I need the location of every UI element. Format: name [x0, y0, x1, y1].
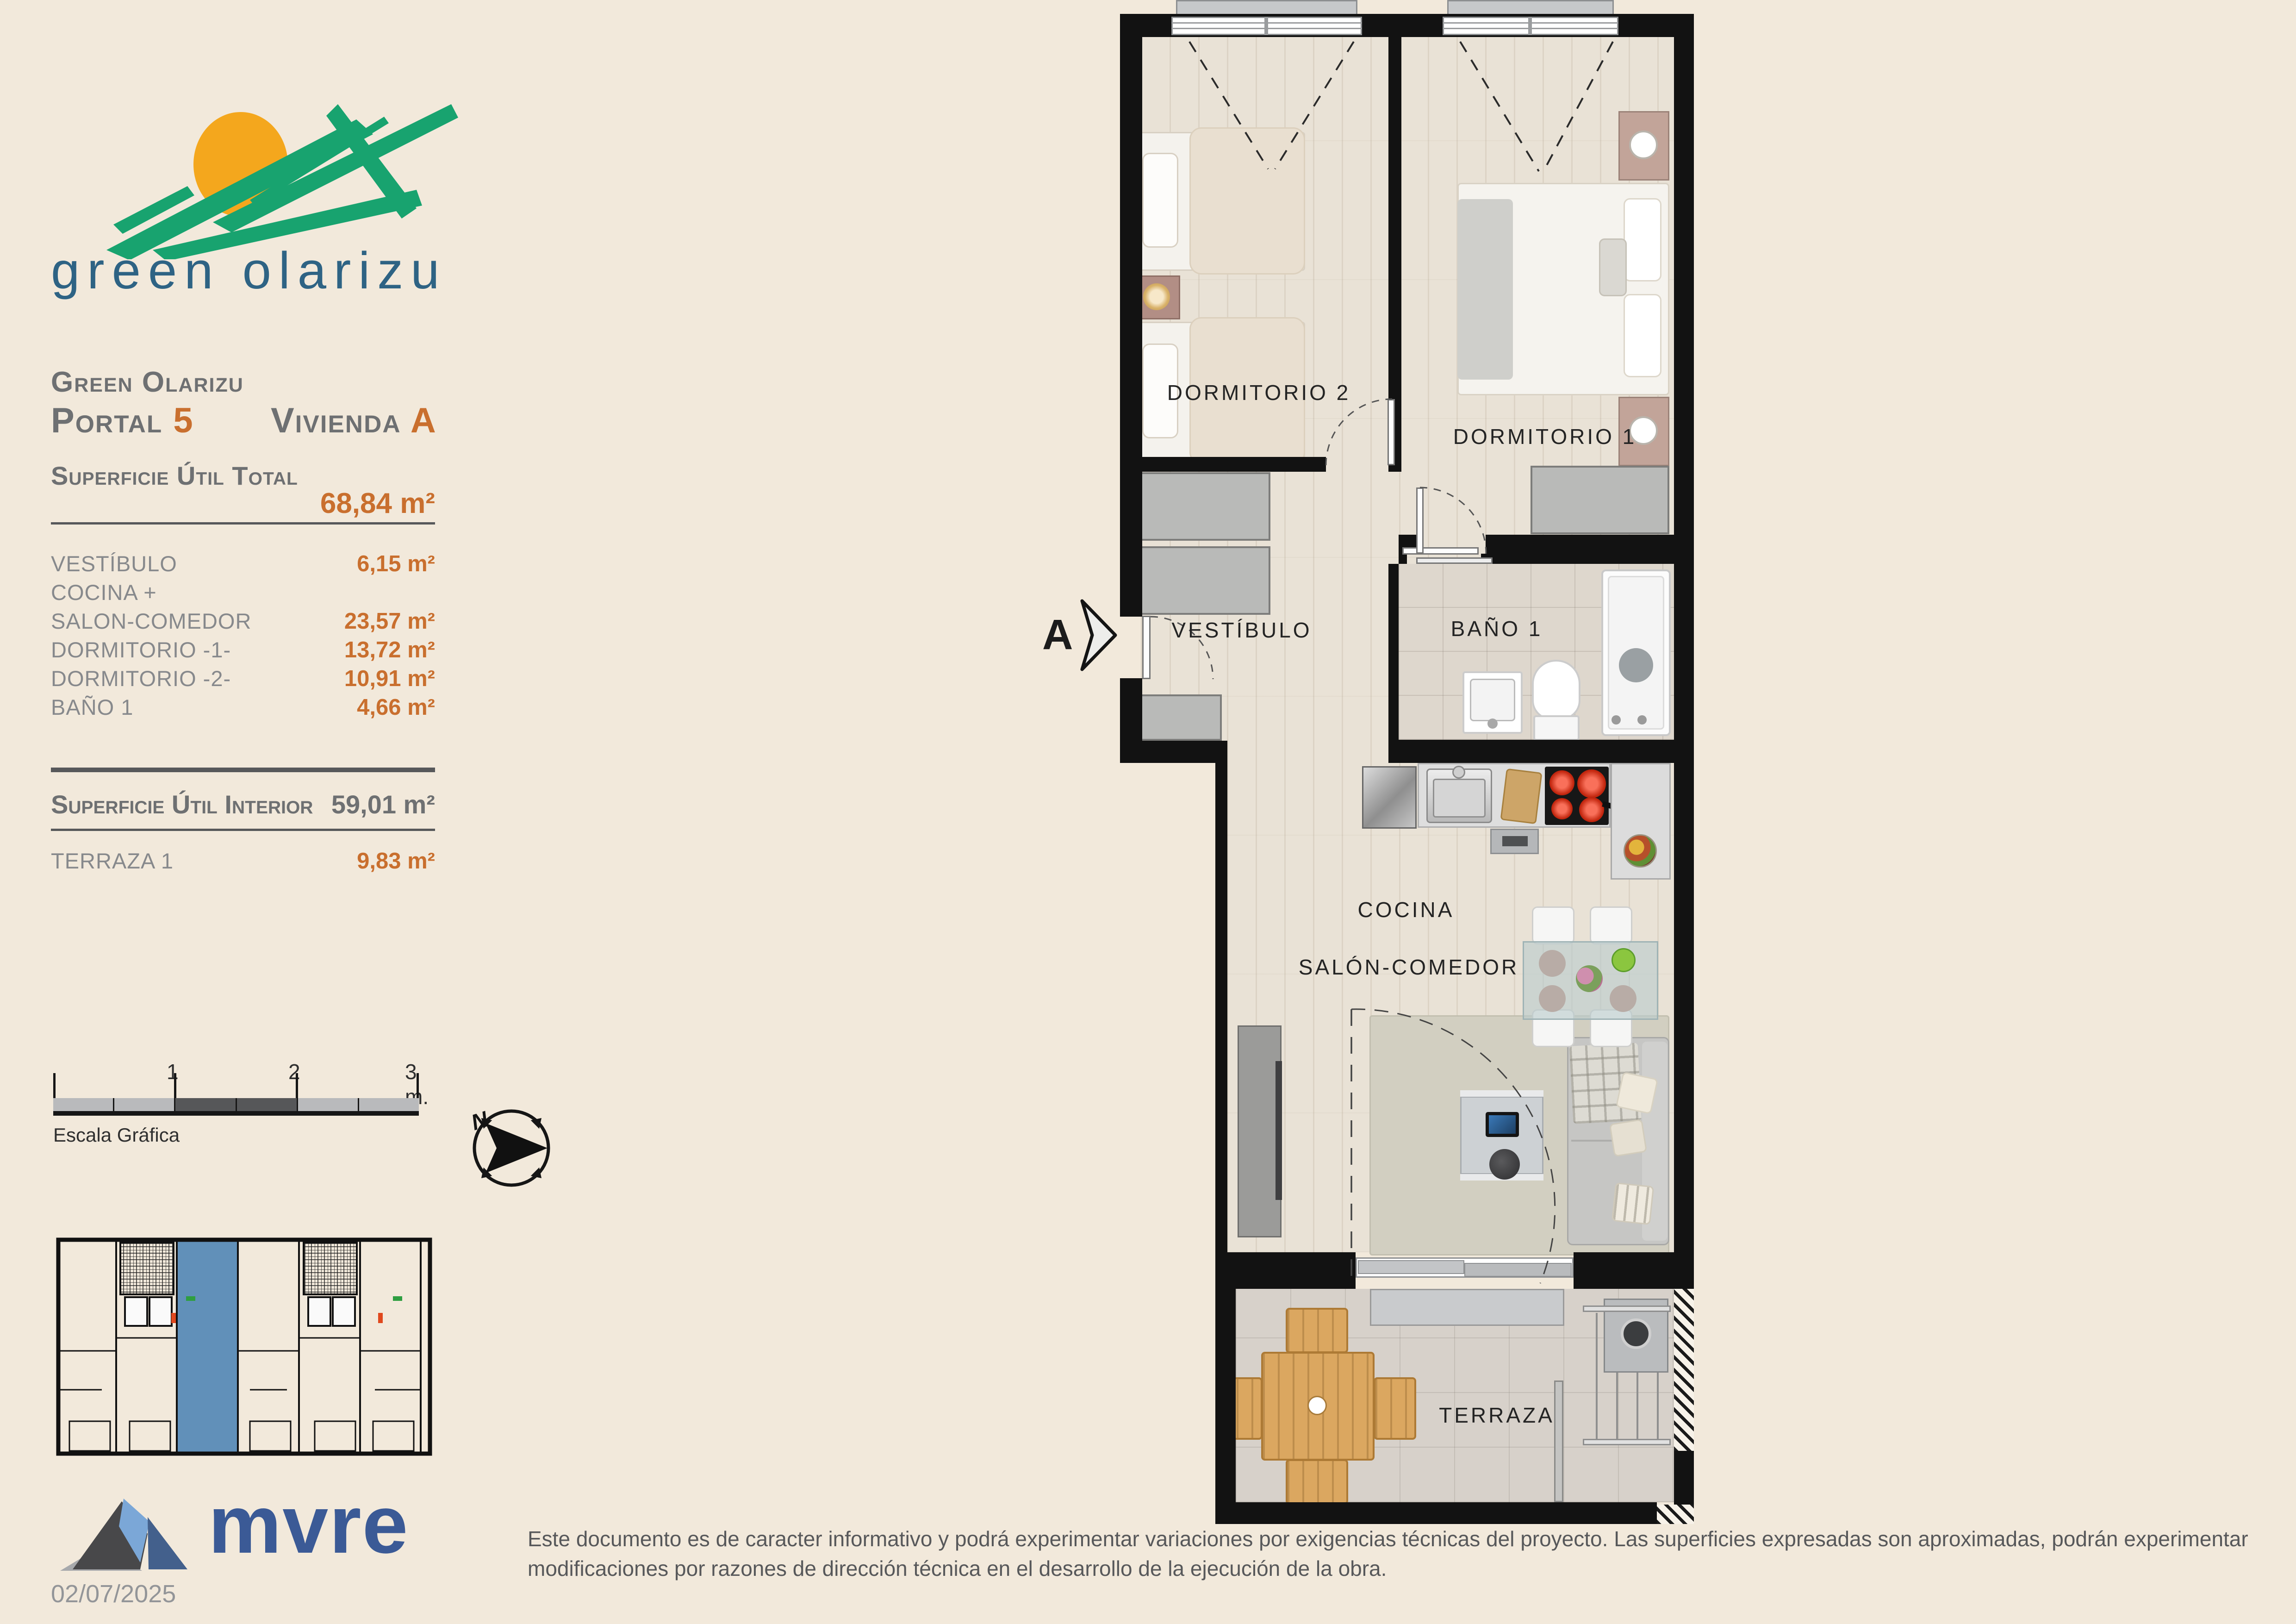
vivienda-label: Vivienda: [271, 401, 401, 440]
elevators: [125, 1297, 355, 1326]
section-marker-letter: A: [1042, 611, 1073, 658]
scale-caption: Escala Gráfica: [53, 1124, 180, 1146]
superficie-total-label: Superficie Útil Total: [51, 461, 298, 491]
terrace-stubs: [69, 1421, 414, 1451]
portal-number: 5: [173, 401, 193, 440]
row-label: BAÑO 1: [51, 694, 133, 720]
row-value: 9,83 m²: [357, 848, 435, 874]
scale-bar: 1 2 3 m. Escala Gráfica: [53, 1059, 423, 1147]
room-label-dormitorio1: DORMITORIO 1: [1453, 424, 1637, 449]
brand-logo-text: green olarizu: [51, 241, 514, 300]
table-row: SALON-COMEDOR 23,57 m²: [51, 608, 435, 637]
row-label: SALON-COMEDOR: [51, 608, 251, 634]
room-label-vestibulo: VESTÍBULO: [1171, 618, 1312, 643]
row-label: DORMITORIO -1-: [51, 637, 231, 662]
grass-strokes-icon: [106, 104, 458, 259]
portal-label: Portal: [51, 401, 162, 440]
superficie-total-value: 68,84 m²: [51, 487, 435, 520]
row-value: 13,72 m²: [344, 637, 435, 663]
superficie-interior-value: 59,01 m²: [331, 789, 435, 819]
date-label: 02/07/2025: [51, 1580, 176, 1608]
entry-door-marker: [378, 1313, 383, 1323]
portal-vivienda-line: Portal 5 Vivienda A: [51, 400, 437, 441]
scale-tick-label-1: 1: [167, 1059, 179, 1084]
vivienda-letter: A: [411, 401, 437, 440]
floor-plan: DORMITORIO 2 DORMITORIO 1 VESTÍBULO BAÑO…: [1120, 14, 1694, 1524]
room-label-bano1: BAÑO 1: [1451, 616, 1543, 641]
mvre-logo-icon: [53, 1488, 206, 1576]
table-row: BAÑO 1 4,66 m²: [51, 694, 435, 723]
row-label: COCINA +: [51, 580, 157, 605]
plan-sheet: green olarizu Green Olarizu Portal 5 Viv…: [0, 0, 2296, 1624]
divider: [51, 522, 435, 525]
section-arrow-icon: [1082, 601, 1115, 669]
superficie-interior-line: Superficie Útil Interior 59,01 m²: [51, 789, 435, 819]
stair-core: [304, 1243, 357, 1294]
table-row: COCINA +: [51, 580, 435, 608]
surface-rows: VESTÍBULO 6,15 m² COCINA + SALON-COMEDOR…: [51, 551, 435, 723]
utility-marker: [186, 1296, 195, 1301]
table-row: VESTÍBULO 6,15 m²: [51, 551, 435, 580]
row-value: 4,66 m²: [357, 694, 435, 720]
compass-icon: N: [465, 1102, 558, 1194]
room-label-cocina: COCINA: [1358, 897, 1455, 922]
highlighted-unit: [177, 1242, 238, 1452]
entry-door-marker: [171, 1313, 176, 1323]
disclaimer-text: Este documento es de caracter informativ…: [528, 1524, 2268, 1583]
row-label: TERRAZA 1: [51, 848, 174, 874]
superficie-interior-label: Superficie Útil Interior: [51, 789, 313, 819]
terraza-row: TERRAZA 1 9,83 m²: [51, 848, 435, 874]
room-label-dormitorio2: DORMITORIO 2: [1167, 380, 1351, 405]
plan-annotations: [1120, 14, 1694, 1524]
row-label: VESTÍBULO: [51, 551, 177, 576]
divider: [51, 829, 435, 831]
table-row: DORMITORIO -2- 10,91 m²: [51, 666, 435, 694]
divider-thick: [51, 768, 435, 772]
table-row: DORMITORIO -1- 13,72 m²: [51, 637, 435, 666]
building-key-plan: [56, 1237, 433, 1458]
room-label-salon: SALÓN-COMEDOR: [1299, 955, 1519, 980]
room-label-terraza: TERRAZA: [1439, 1403, 1555, 1428]
scale-tick-label-2: 2: [288, 1059, 300, 1084]
stair-core: [120, 1243, 174, 1294]
scale-baseline: [53, 1111, 419, 1116]
row-value: 23,57 m²: [344, 608, 435, 634]
project-title: Green Olarizu: [51, 366, 244, 399]
row-value: 6,15 m²: [357, 551, 435, 577]
scale-segments: [53, 1098, 419, 1111]
row-value: 10,91 m²: [344, 666, 435, 692]
row-label: DORMITORIO -2-: [51, 666, 231, 691]
utility-marker: [393, 1296, 402, 1301]
brand-logo-icon: [97, 65, 477, 259]
mvre-logo-text: mvre: [208, 1490, 409, 1559]
